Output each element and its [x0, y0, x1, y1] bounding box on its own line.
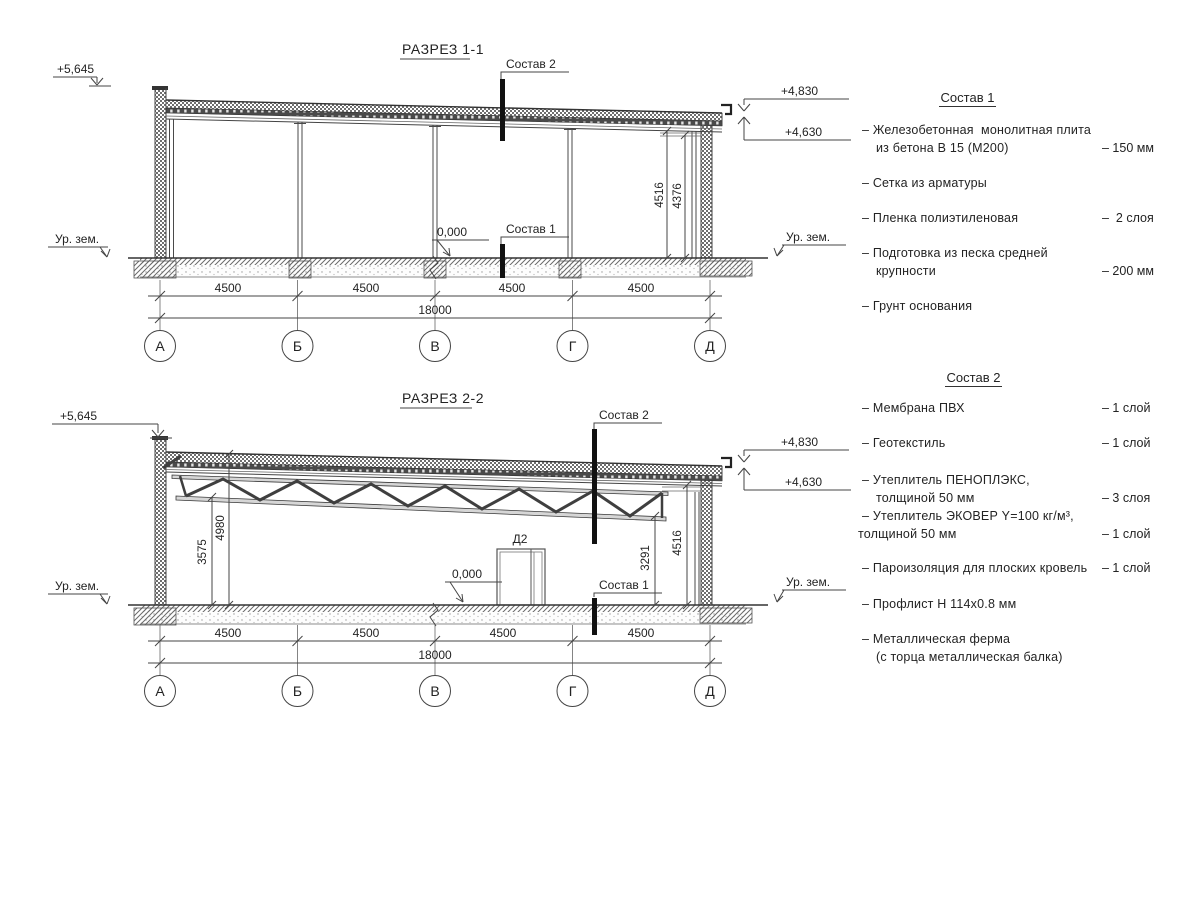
notes2-item1-line1: – Мембрана ПВХ [862, 401, 965, 415]
notes1-item2-line1: – Сетка из арматуры [862, 176, 987, 190]
notes2-item7-line1: – Металлическая ферма [862, 632, 1010, 646]
notes1-item5-line1: – Грунт основания [862, 299, 972, 313]
notes2-item5-value: – 1 слой [1102, 561, 1150, 575]
notes1-item1-line2: из бетона В 15 (М200) [876, 141, 1009, 155]
notes2-item6-line1: – Профлист Н 114х0.8 мм [862, 597, 1016, 611]
notes2-item2-value: – 1 слой [1102, 436, 1150, 450]
notes2-item3-value: – 3 слоя [1102, 491, 1150, 505]
notes2-item4-line2: толщиной 50 мм [858, 527, 957, 541]
notes1-item3-value: – 2 слоя [1102, 211, 1154, 225]
notes1-item4-value: – 200 мм [1102, 264, 1154, 278]
notes2-item3-line2: толщиной 50 мм [876, 491, 975, 505]
notes2-item4-value: – 1 слой [1102, 527, 1150, 541]
notes2-item7-line2: (с торца металлическая балка) [876, 650, 1063, 664]
notes1-item1-line1: – Железобетонная монолитная плита [862, 123, 1091, 137]
notes1-item3-line1: – Пленка полиэтиленовая [862, 211, 1018, 225]
notes2-item4-line1: – Утеплитель ЭКОВЕР Y=100 кг/м³, [862, 509, 1074, 523]
notes1-item1-value: – 150 мм [1102, 141, 1154, 155]
notes2-item3-line1: – Утеплитель ПЕНОПЛЭКС, [862, 473, 1030, 487]
notes2-item1-value: – 1 слой [1102, 401, 1150, 415]
notes2-item5-line1: – Пароизоляция для плоских кровель [862, 561, 1087, 575]
notes-column: Состав 1 – Железобетонная монолитная пли… [0, 0, 1200, 900]
notes2-item2-line1: – Геотекстиль [862, 436, 946, 450]
notes1-item4-line2: крупности [876, 264, 936, 278]
notes1-heading: Состав 1 [850, 90, 1085, 105]
notes2-heading: Состав 2 [856, 370, 1091, 385]
notes1-item4-line1: – Подготовка из песка средней [862, 246, 1048, 260]
drawing-sheet: { "drawing": { "s1": { "title": "РАЗРЕЗ … [0, 0, 1200, 900]
